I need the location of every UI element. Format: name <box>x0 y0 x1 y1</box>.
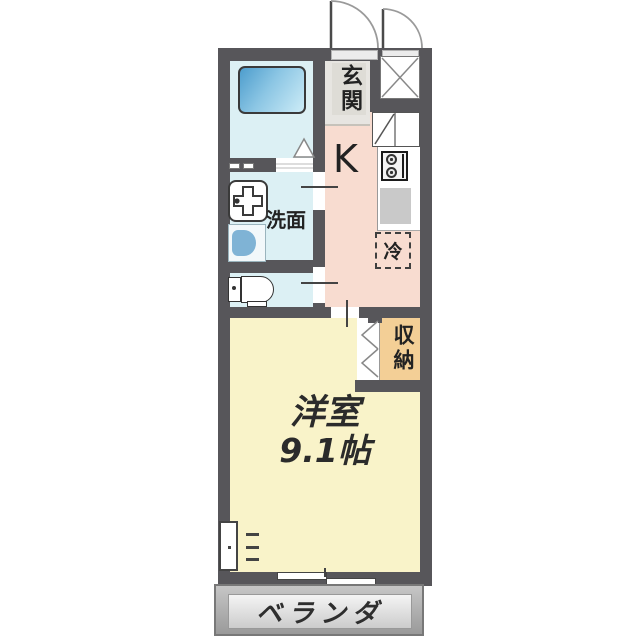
wall-left <box>218 48 230 586</box>
entrance-step-line <box>325 124 370 126</box>
bath-wall-vent-dash <box>243 163 254 169</box>
entrance-door-swing-icon <box>331 1 378 48</box>
wall-mid-center <box>313 210 325 267</box>
kitchen-room-door-opening <box>331 307 359 318</box>
refrigerator-label: 冷 <box>383 237 402 264</box>
sliding-window-panel-left <box>277 572 327 580</box>
wall-meterbox-bottom <box>370 99 420 112</box>
meterbox-door-swing-icon <box>383 9 422 48</box>
wall-storage-bottom <box>355 380 432 392</box>
bathroom-door-opening <box>276 158 313 172</box>
window-vent-dash <box>246 533 259 536</box>
toilet-tank-icon <box>228 277 241 302</box>
veranda-panel: ベランダ <box>228 594 412 629</box>
stove-burner <box>386 167 397 178</box>
kitchen-sink-icon <box>380 188 411 224</box>
stove-grill-bar <box>402 154 404 178</box>
refrigerator-box: 冷 <box>375 232 411 269</box>
toilet-base-icon <box>247 301 267 307</box>
veranda-label: ベランダ <box>256 593 384 630</box>
toilet-bowl-icon <box>241 276 274 303</box>
window-vent-dash <box>246 558 259 561</box>
western-room-name: 洋室 <box>230 394 420 433</box>
window-vent-dash <box>246 546 259 549</box>
entrance-door-threshold <box>331 50 378 60</box>
western-room-size: 9.1帖 <box>230 433 420 470</box>
shoe-cabinet <box>372 112 420 147</box>
side-window <box>219 521 238 571</box>
meter-box <box>380 56 420 99</box>
toilet-flush-button <box>232 286 236 290</box>
wall-above-room-left <box>230 307 331 318</box>
storage-label: 収納 <box>388 324 418 374</box>
washroom-door-opening <box>313 172 325 210</box>
bathtub-icon <box>238 66 306 114</box>
floor-plan: 冷 ベランダ <box>0 0 640 640</box>
wall-mid-upper <box>313 56 325 172</box>
window-latch <box>228 546 231 549</box>
bath-wall-vent-dash <box>229 163 240 169</box>
washing-machine-pan-icon <box>228 224 266 262</box>
kitchen-label: K <box>333 137 358 181</box>
gas-stove-icon <box>381 151 408 181</box>
washbasin-icon <box>228 180 268 222</box>
toilet-door-opening <box>313 267 325 303</box>
wall-storage-corner <box>368 307 382 323</box>
stove-burner <box>386 154 397 165</box>
entrance-label: 玄関 <box>332 63 366 115</box>
storage-door-strip <box>357 318 380 380</box>
washing-machine-icon <box>232 230 256 256</box>
washroom-label: 洗面 <box>266 204 306 233</box>
western-room-label-block: 洋室 9.1帖 <box>230 394 420 470</box>
veranda: ベランダ <box>214 584 424 636</box>
